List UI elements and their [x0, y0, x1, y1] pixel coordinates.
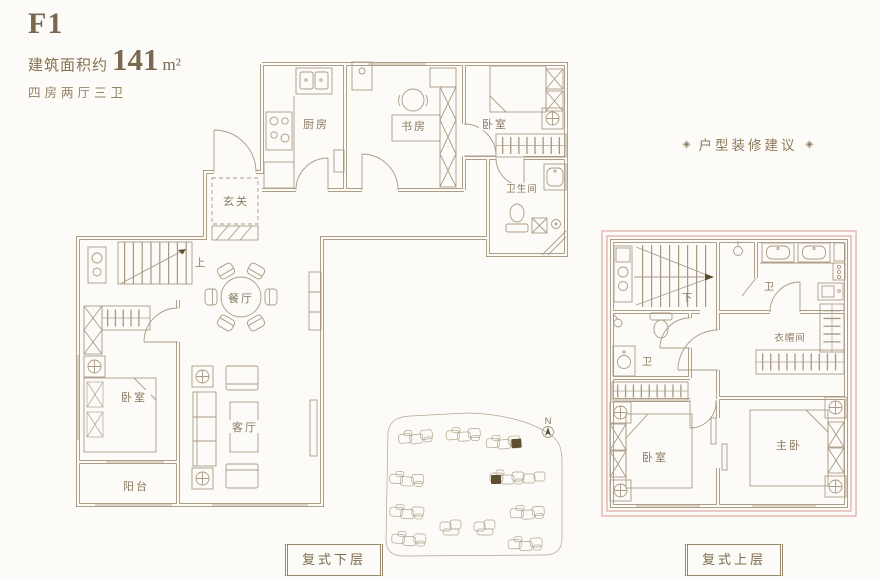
area-line: 建筑面积约 141 m² [28, 42, 181, 78]
layout-spec: 四房两厅三卫 [28, 82, 181, 101]
sliding-door [711, 418, 727, 470]
stairs-up [118, 242, 192, 284]
left-bedroom-furniture [84, 306, 156, 452]
label-living: 客厅 [232, 420, 258, 434]
label-bath-left: 卫 [642, 357, 652, 368]
area-unit: m² [163, 55, 181, 75]
dining-cabinet [309, 272, 321, 330]
bathroom-fixtures [506, 164, 566, 255]
upper-floor-plan: 下 卫 卫 衣帽间 卧室 主卧 [602, 231, 856, 516]
north-compass: N [543, 416, 554, 438]
label-foyer: 玄关 [223, 194, 249, 208]
label-cloakroom: 衣帽间 [774, 332, 806, 344]
upper-bedroom-closet [612, 382, 688, 400]
label-kitchen: 厨房 [303, 118, 329, 131]
label-bath-top: 卫 [764, 282, 774, 293]
label-bathroom: 卫生间 [506, 183, 538, 195]
site-map: N [386, 413, 562, 556]
label-stairs-down: 下 [682, 292, 693, 304]
diamond-ornament-icon: ◈ [806, 139, 814, 150]
plan-header: F1 建筑面积约 141 m² 四房两厅三卫 [28, 8, 181, 101]
caption-lower-floor: 复式下层 [285, 544, 383, 576]
diamond-ornament-icon: ◈ [683, 139, 691, 150]
upper-bath-top-fixtures [734, 241, 846, 300]
area-label: 建筑面积约 [28, 54, 108, 75]
label-dining: 餐厅 [228, 291, 254, 305]
label-bedroom-top: 卧室 [482, 117, 508, 131]
plan-code: F1 [28, 8, 181, 40]
laundry-cabinet [88, 247, 106, 283]
top-bedroom-furniture [490, 66, 566, 157]
label-balcony: 阳台 [123, 479, 149, 493]
suggestion-text: 户型装修建议 [699, 134, 798, 154]
label-stairs-up: 上 [195, 257, 206, 269]
window-lines [78, 64, 426, 505]
decoration-suggestion-title: ◈ 户型装修建议 ◈ [646, 134, 850, 154]
stairs-down [634, 247, 714, 305]
label-study: 书房 [401, 120, 427, 133]
label-upper-bedroom: 卧室 [642, 450, 668, 464]
foyer-furniture [212, 178, 258, 240]
pink-border-outer [602, 231, 856, 516]
label-bedroom-left: 卧室 [121, 390, 147, 404]
label-master-bedroom: 主卧 [776, 439, 802, 452]
area-value: 141 [112, 42, 159, 78]
north-label: N [545, 416, 552, 427]
floorplan-sheet: F1 建筑面积约 141 m² 四房两厅三卫 ◈ 户型装修建议 ◈ [0, 0, 880, 580]
caption-upper-floor: 复式上层 [685, 544, 783, 576]
stair-cabinet [614, 246, 632, 302]
